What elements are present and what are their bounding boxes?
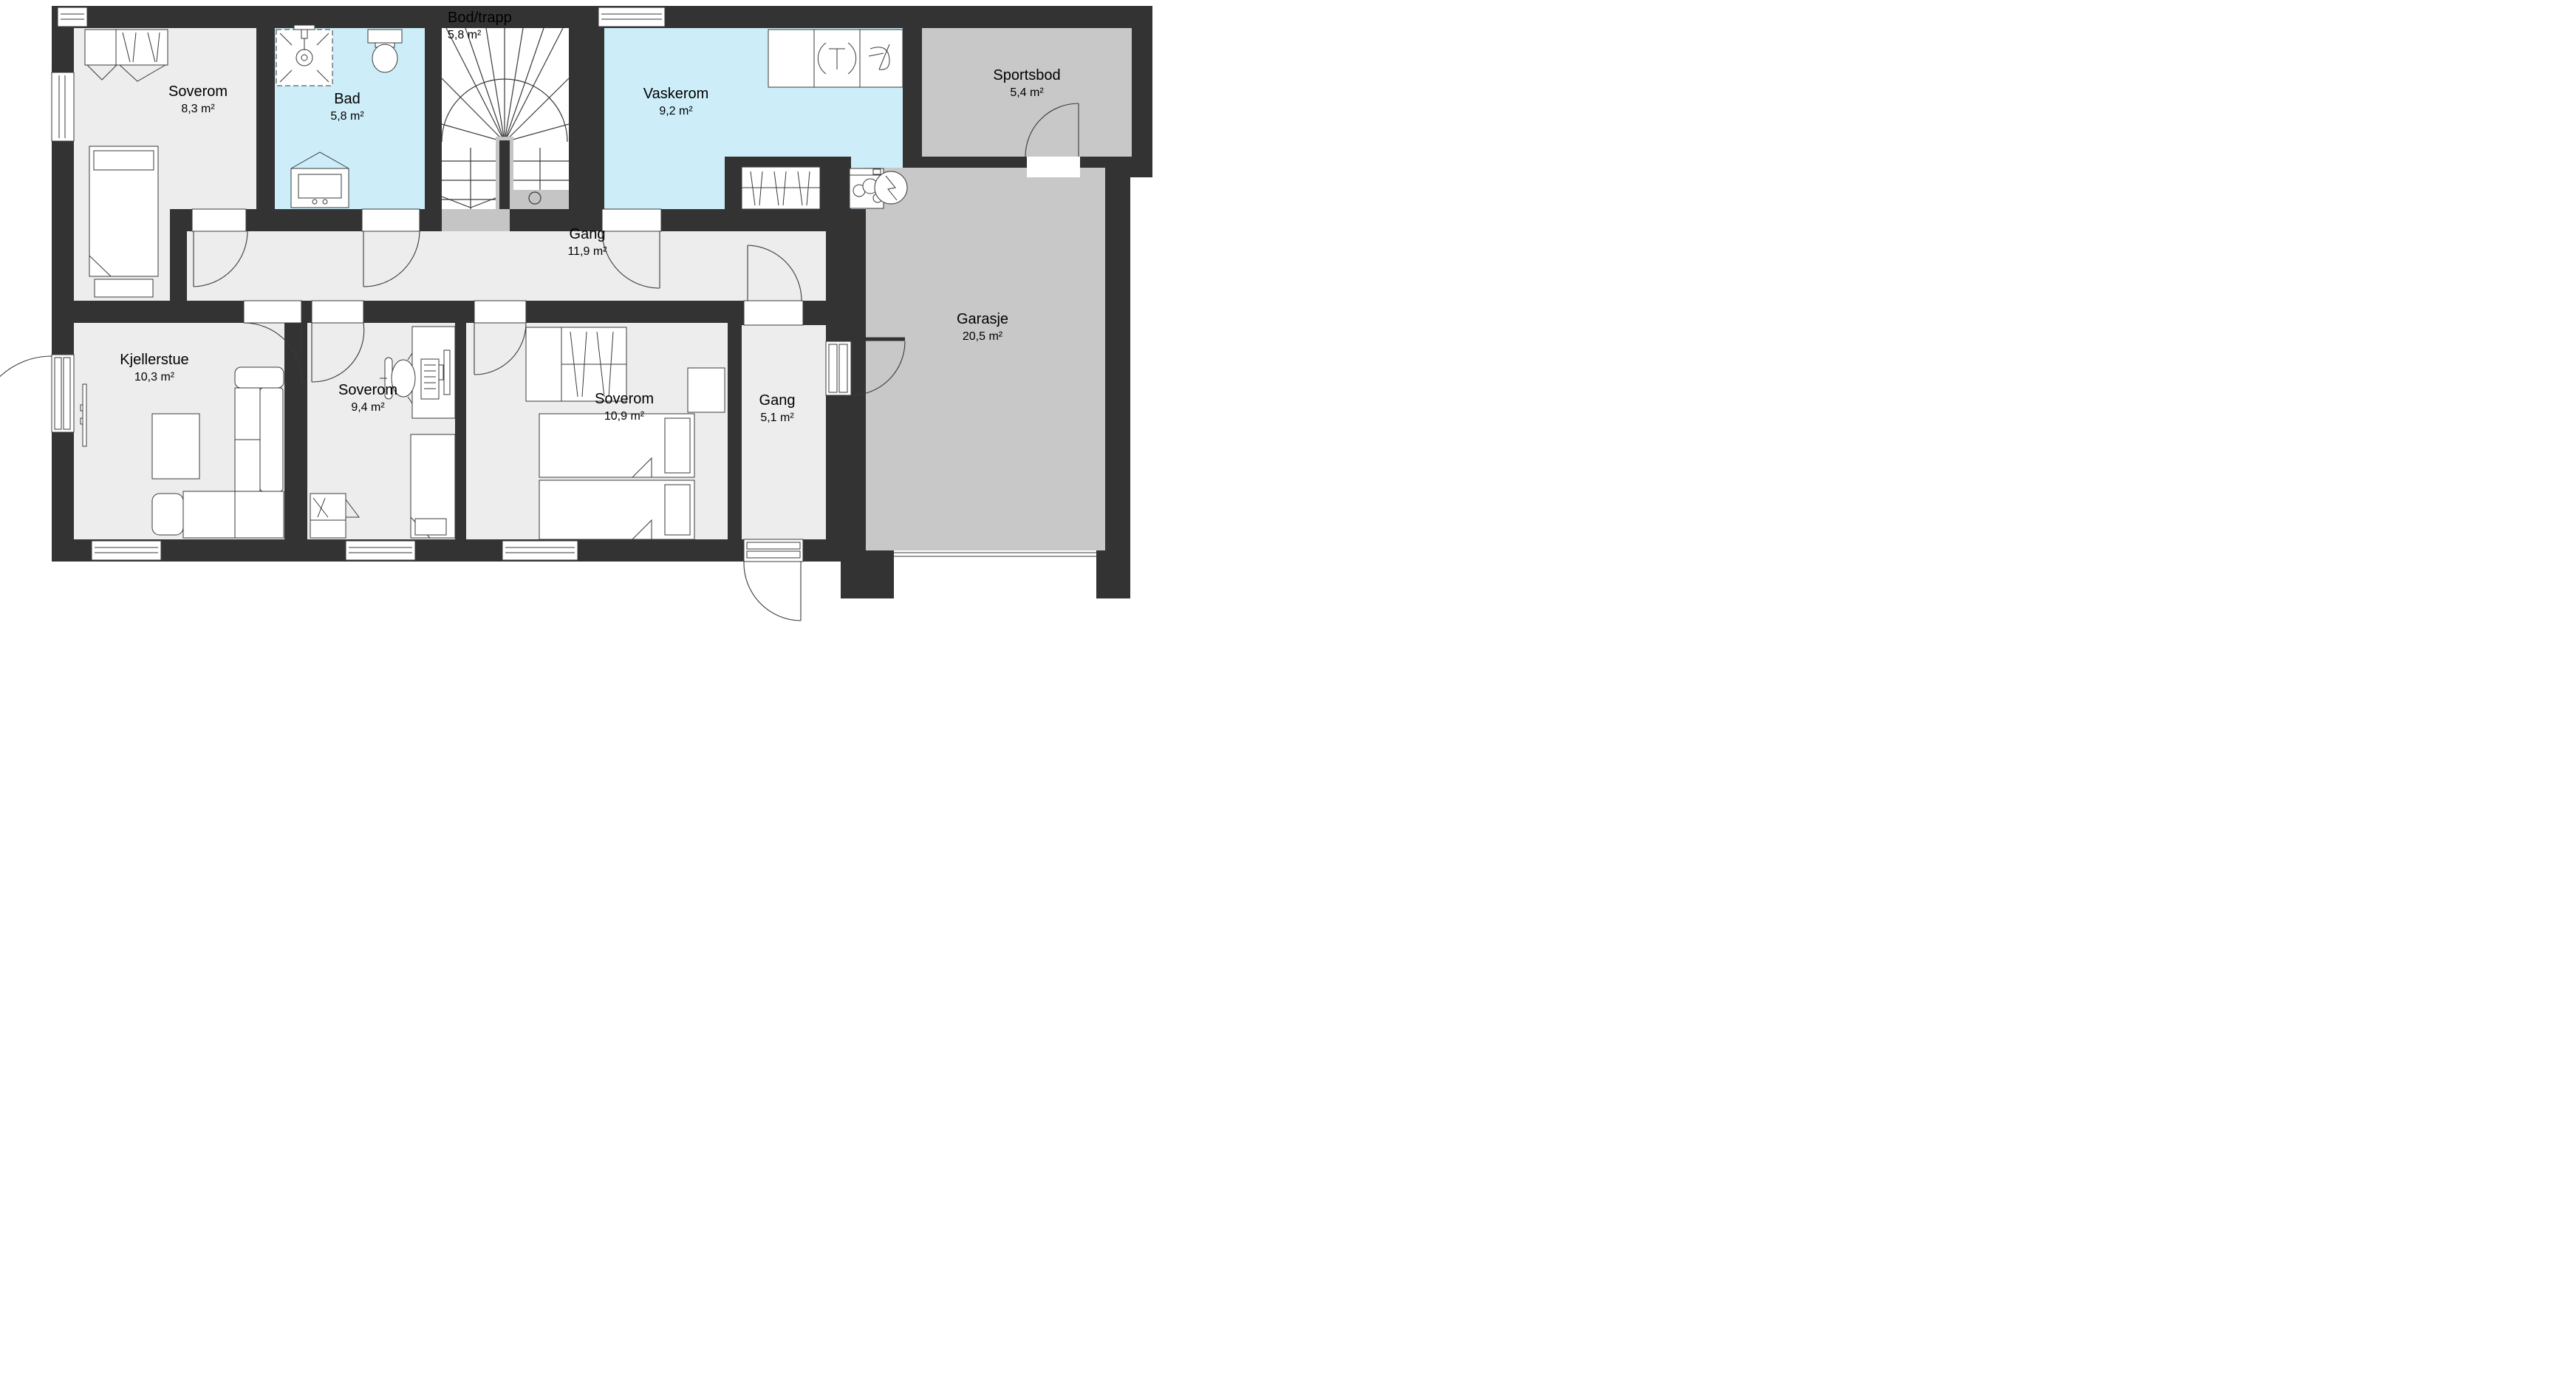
floor-plan-drawing xyxy=(0,0,1158,626)
water-heater-icon xyxy=(875,171,907,204)
desk-icon xyxy=(412,327,455,418)
door-swing-icon xyxy=(744,562,801,621)
window-icon xyxy=(58,7,87,27)
nightstand xyxy=(688,368,725,412)
window-icon xyxy=(598,7,665,27)
room-gang-small xyxy=(742,325,826,539)
room-gang xyxy=(187,231,826,301)
laundry-counter xyxy=(768,30,903,87)
room-sportsbod xyxy=(922,28,1132,157)
window-icon xyxy=(52,72,74,141)
double-bed-icon xyxy=(539,414,694,539)
floor-plan: Soverom 8,3 m² Bad 5,8 m² Bod/trapp 5,8 … xyxy=(0,0,1158,626)
bed-icon xyxy=(411,434,455,538)
bed-icon xyxy=(89,146,158,297)
shower-icon xyxy=(276,25,332,86)
window-icon xyxy=(502,541,578,560)
door-swing-icon xyxy=(0,356,52,432)
window-icon xyxy=(346,541,415,560)
coffee-table-icon xyxy=(152,414,199,479)
closet-icon xyxy=(742,167,820,209)
wardrobe-icon xyxy=(526,327,626,401)
window-icon xyxy=(92,541,161,560)
